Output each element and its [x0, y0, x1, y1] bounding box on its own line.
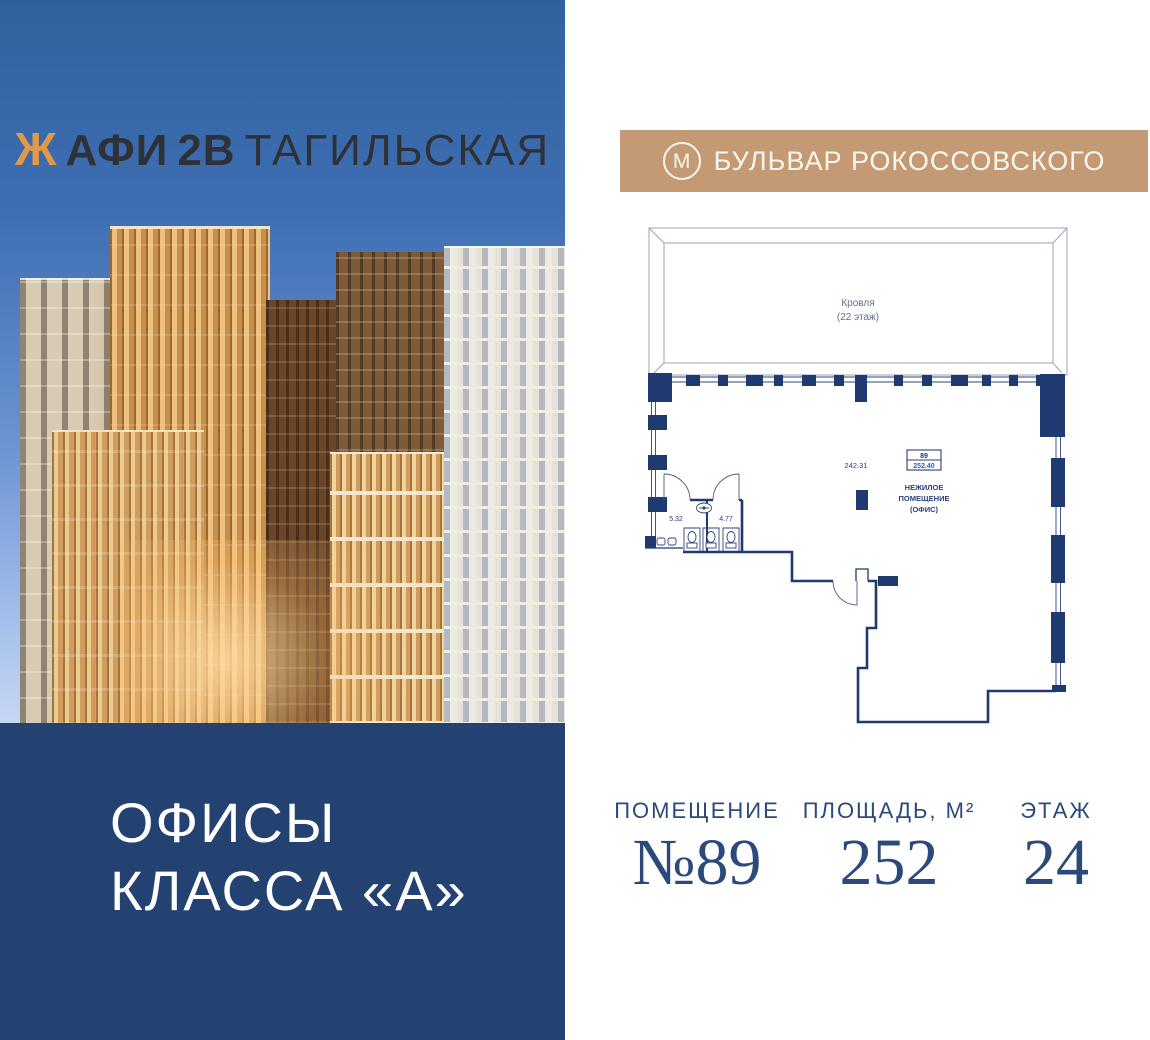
stat-floor: ЭТАЖ 24	[986, 798, 1126, 897]
entry-notch	[856, 569, 868, 581]
stat-area: ПЛОЩАДЬ, М² 252	[799, 798, 979, 897]
area-inline-label: 242.31	[845, 461, 868, 470]
unit-number-box: 89 252.40	[907, 450, 941, 470]
unit-type-line1: НЕЖИЛОЕ	[905, 483, 944, 492]
roof-label-line1: Кровля	[841, 298, 874, 309]
unit-type-line3: (ОФИС)	[910, 505, 939, 514]
roof-label-line2: (22 этаж)	[837, 312, 879, 323]
flyer-page: Ж АФИ 2В ТАГИЛЬСКАЯ ОФИСЫ КЛАССА «А» М Б…	[0, 0, 1150, 1040]
stat-unit-value: №89	[607, 828, 787, 897]
top-wall-columns	[648, 373, 1065, 437]
stat-unit-label: ПОМЕЩЕНИЕ	[607, 798, 787, 824]
stat-floor-label: ЭТАЖ	[986, 798, 1126, 824]
tagline-line-1: ОФИСЫ	[110, 789, 468, 857]
unit-area: 252.40	[913, 463, 935, 470]
left-panel: Ж АФИ 2В ТАГИЛЬСКАЯ ОФИСЫ КЛАССА «А»	[0, 0, 565, 1040]
tower-white	[444, 246, 565, 723]
tower-gold-front	[330, 452, 444, 723]
toilet-icons	[687, 532, 736, 549]
stat-floor-value: 24	[986, 828, 1126, 897]
metro-station-name: БУЛЬВАР РОКОССОВСКОГО	[714, 146, 1106, 177]
stat-area-value: 252	[799, 828, 979, 897]
stat-unit: ПОМЕЩЕНИЕ №89	[607, 798, 787, 897]
logo-project-name: ТАГИЛЬСКАЯ	[245, 129, 551, 173]
wc-right-area-label: 4.77	[719, 516, 733, 523]
tagline-line-2: КЛАССА «А»	[110, 857, 468, 925]
metro-badge: М БУЛЬВАР РОКОССОВСКОГО	[620, 130, 1148, 192]
unit-walls	[656, 500, 1056, 722]
building-photo: Ж АФИ 2В ТАГИЛЬСКАЯ	[0, 0, 565, 723]
unit-type-line2: ПОМЕЩЕНИЕ	[899, 494, 950, 503]
brand-logo: Ж АФИ 2В ТАГИЛЬСКАЯ	[0, 126, 565, 173]
floor-plan: Кровля (22 этаж)	[645, 225, 1085, 735]
unit-number: 89	[920, 453, 928, 460]
logo-brand-text: АФИ	[65, 129, 168, 173]
interior-column	[856, 490, 868, 510]
tower-gold-front-left	[52, 430, 204, 723]
logo-mark-icon: Ж	[15, 126, 57, 172]
stat-area-label: ПЛОЩАДЬ, М²	[799, 798, 979, 824]
logo-block-text: 2В	[177, 129, 235, 173]
tower-brown	[266, 300, 338, 723]
wc-left-area-label: 5.32	[669, 516, 683, 523]
right-wall-columns	[1051, 383, 1066, 692]
tagline-box: ОФИСЫ КЛАССА «А»	[0, 723, 565, 1040]
metro-icon: М	[663, 142, 701, 180]
tagline: ОФИСЫ КЛАССА «А»	[110, 789, 468, 926]
wall-stub	[878, 576, 898, 586]
